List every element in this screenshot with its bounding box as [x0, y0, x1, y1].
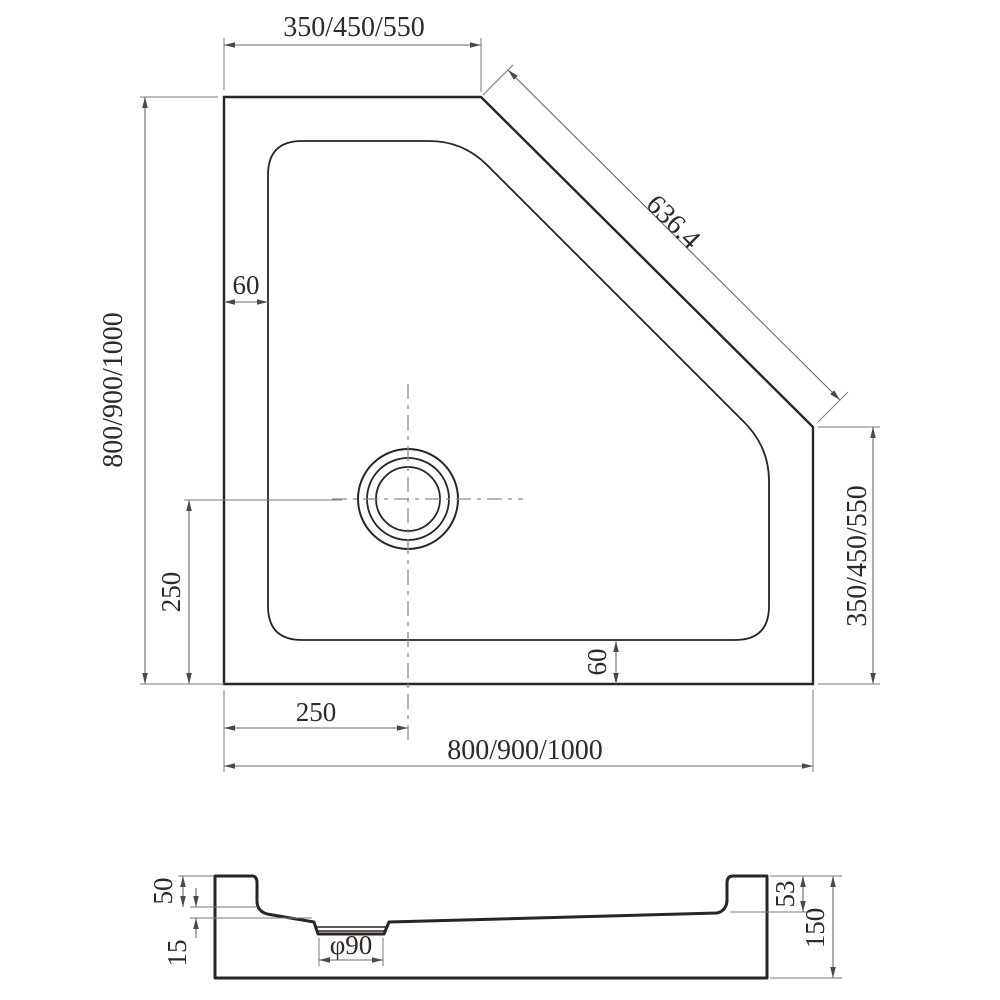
dim-label-rim-left: 50	[148, 878, 178, 905]
dim-top-edge: 350/450/550	[224, 12, 481, 92]
dim-label-rim-right: 53	[770, 881, 800, 908]
drawing-canvas: 350/450/550 636.4 800/900/1000 350/450/5…	[0, 0, 1000, 1000]
dim-label-diagonal: 636.4	[640, 189, 706, 255]
dim-label-offset-bottom: 60	[582, 649, 612, 676]
tray-outer-outline	[224, 97, 813, 684]
plan-view: 350/450/550 636.4 800/900/1000 350/450/5…	[98, 12, 880, 772]
section-view: 50 15 φ90 53 150	[148, 876, 842, 978]
dim-label-left: 800/900/1000	[98, 312, 129, 468]
extension-line	[483, 65, 513, 95]
dim-label-drain-left: 250	[296, 697, 337, 727]
dim-label-recess-depth: 15	[162, 940, 192, 967]
dim-label-offset-top: 60	[233, 270, 260, 300]
dim-label-drain-bottom: 250	[156, 572, 186, 613]
shower-tray-drawing: 350/450/550 636.4 800/900/1000 350/450/5…	[0, 0, 1000, 1000]
dim-label-overall-height: 150	[800, 908, 830, 949]
dim-label-right: 350/450/550	[842, 485, 873, 627]
dim-drain-from-left: 250	[224, 697, 408, 728]
dim-right-edge: 350/450/550	[818, 427, 880, 684]
dim-label-drain-diameter: φ90	[330, 930, 373, 960]
dim-label-top: 350/450/550	[283, 12, 425, 43]
section-profile-outline	[215, 876, 767, 978]
extension-line	[818, 392, 848, 422]
dim-label-bottom: 800/900/1000	[447, 735, 603, 766]
